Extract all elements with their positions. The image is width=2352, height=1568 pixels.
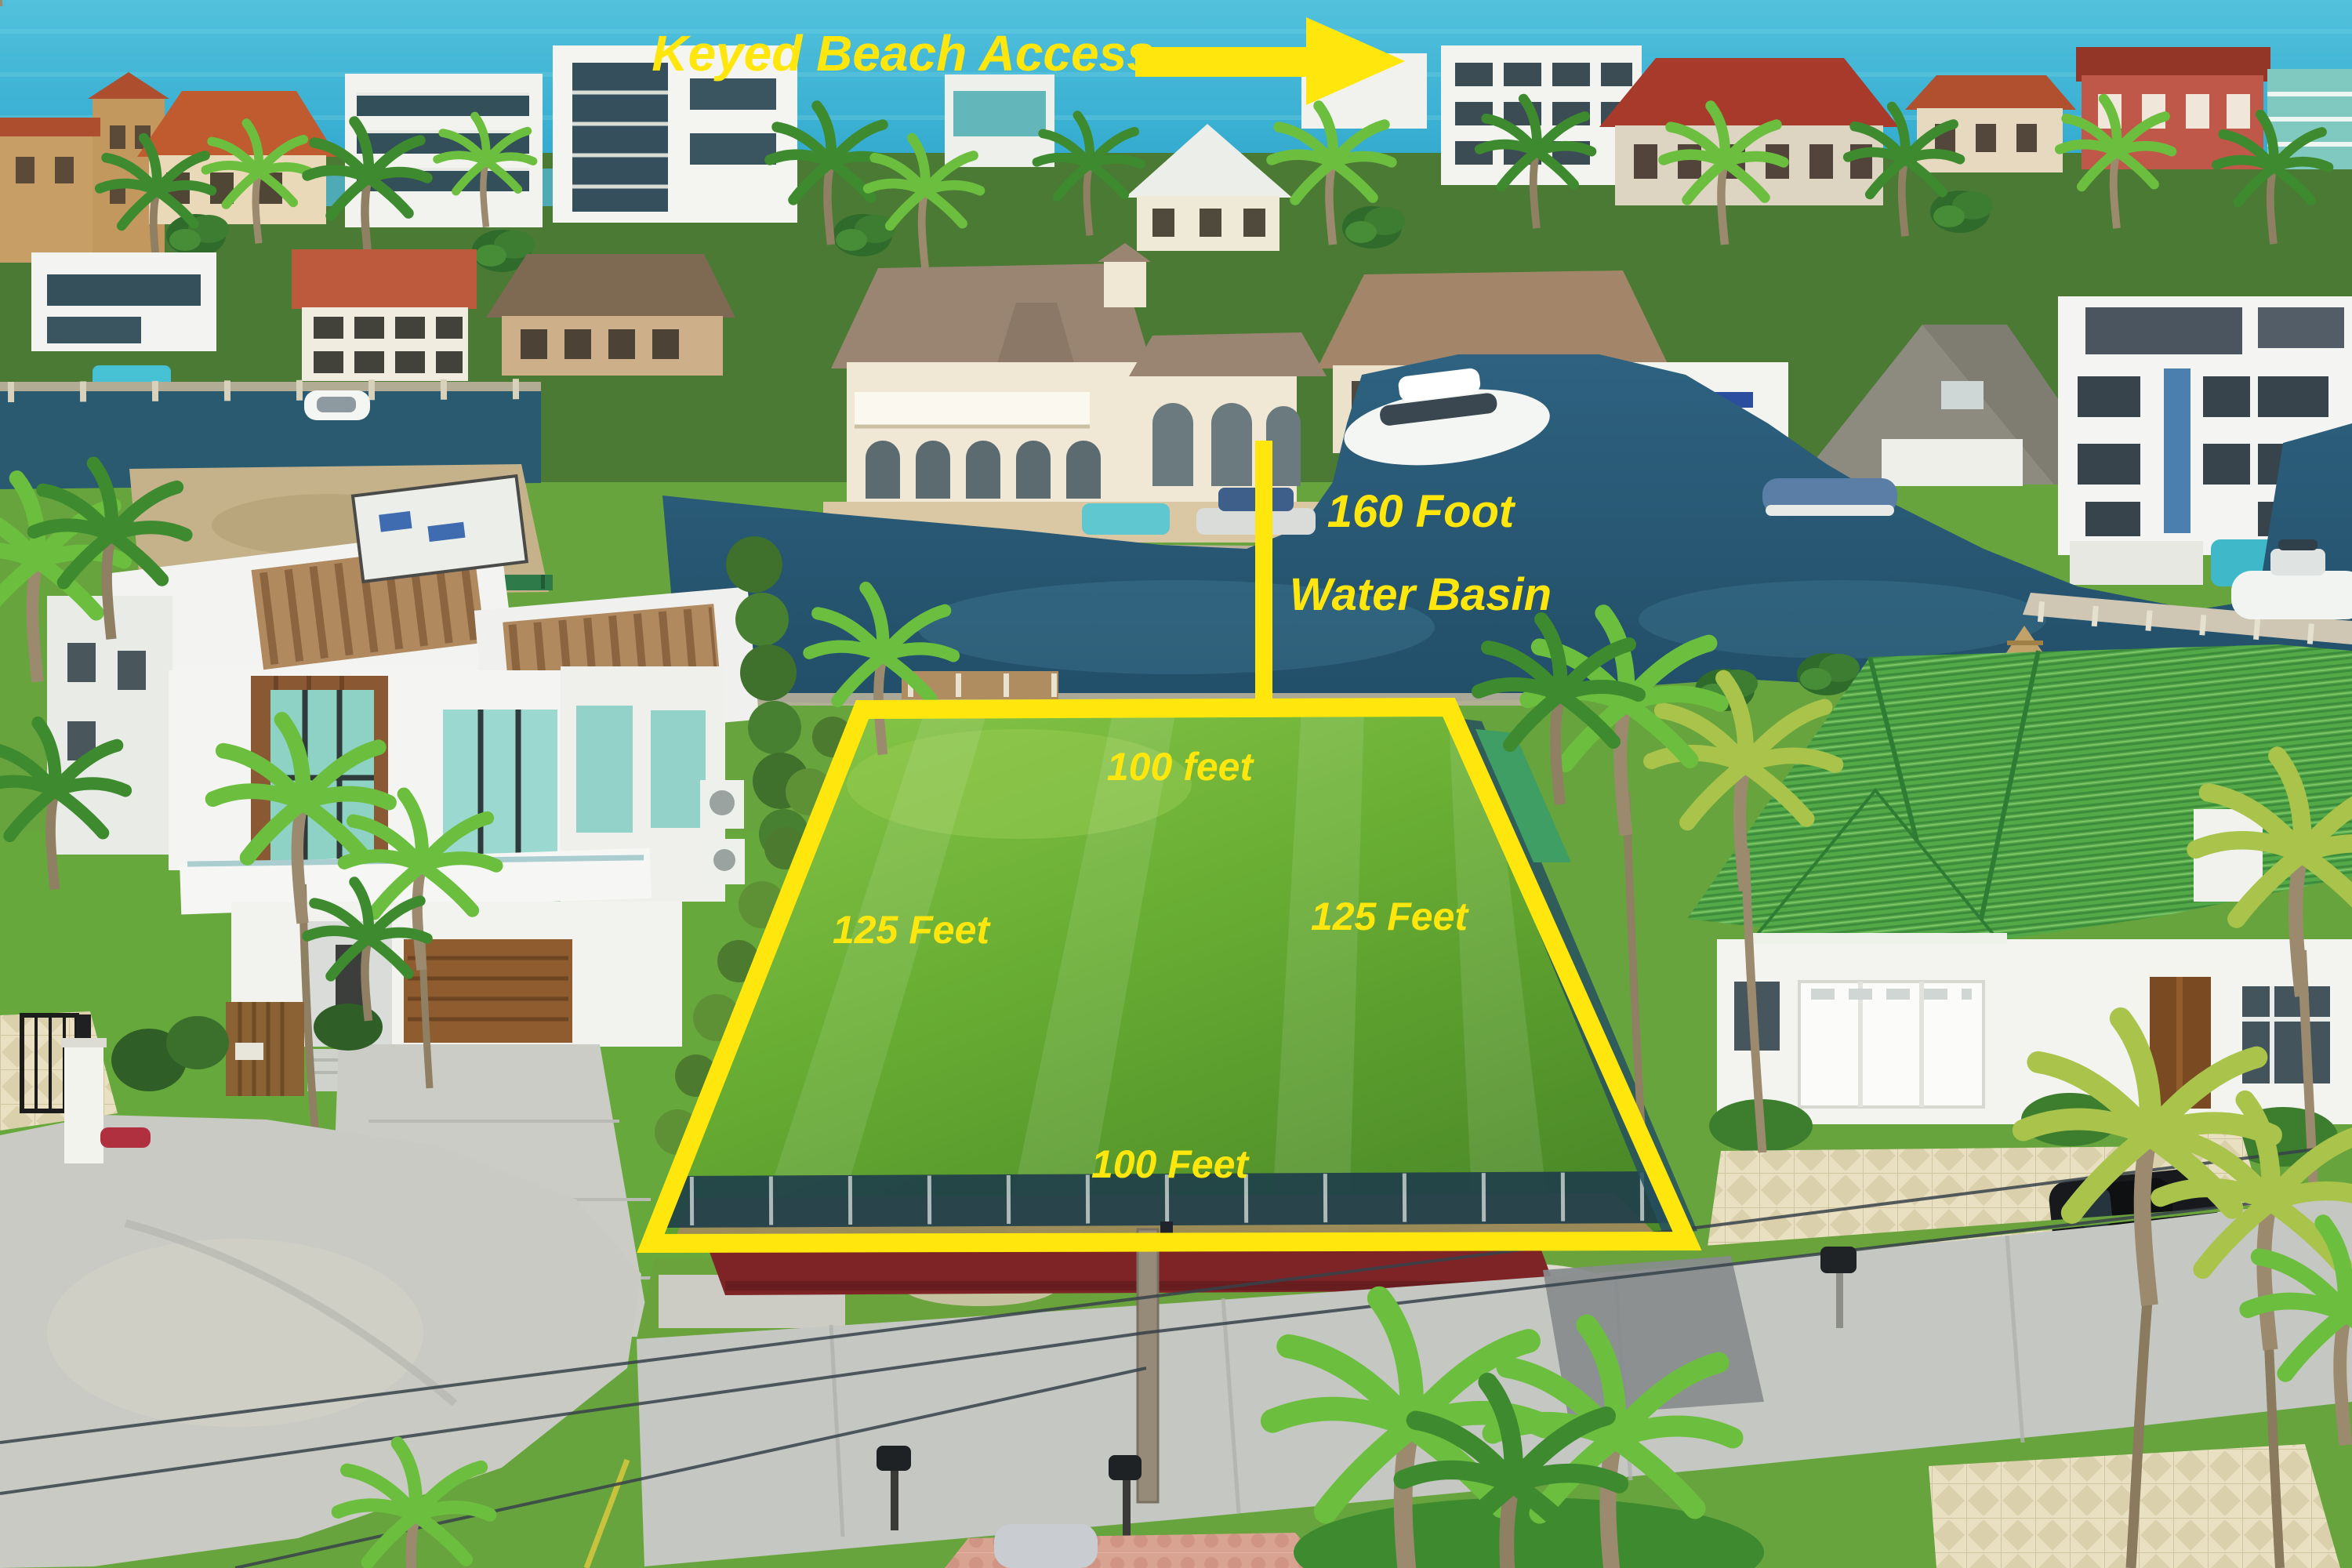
address-wood-panel <box>226 1002 304 1096</box>
flower-bed <box>100 1127 151 1148</box>
lot-top-dimension: 100 feet <box>1107 745 1255 789</box>
silver-car-roof <box>994 1524 1098 1568</box>
lot-left-dimension: 125 Feet <box>833 908 991 952</box>
white-condo-a <box>345 74 543 227</box>
swimming-pool <box>1082 503 1170 535</box>
garage-door <box>1799 982 1984 1107</box>
boat-t-top <box>2278 539 2318 550</box>
hedge <box>314 1004 383 1051</box>
aerial-listing-photo: Keyed Beach Access 160 Foot Water Basin … <box>0 0 2352 1568</box>
aerial-photo-canvas: Keyed Beach Access 160 Foot Water Basin … <box>0 0 2352 1568</box>
blue-accent-wall <box>2164 368 2190 533</box>
beach-access-label: Keyed Beach Access <box>652 25 1155 82</box>
lot-bottom-dimension: 100 Feet <box>1091 1142 1250 1186</box>
hedge <box>166 1016 229 1069</box>
covered-boat <box>1762 478 1897 516</box>
lot-right-dimension: 125 Feet <box>1311 895 1469 938</box>
tan-brown-roof-house <box>486 254 735 376</box>
basin-label-line1: 160 Foot <box>1327 486 1516 537</box>
terrace <box>2070 541 2203 585</box>
arched-windows <box>1152 403 1301 486</box>
red-tile-roof-house <box>292 249 477 381</box>
boat-cockpit <box>317 397 356 412</box>
basin-label-line2: Water Basin <box>1290 569 1552 620</box>
basin-pointer-line <box>1255 441 1272 713</box>
teal-glass-building <box>945 74 1054 167</box>
solar-roof-panels <box>2085 307 2242 354</box>
gate-lantern <box>77 1014 91 1038</box>
